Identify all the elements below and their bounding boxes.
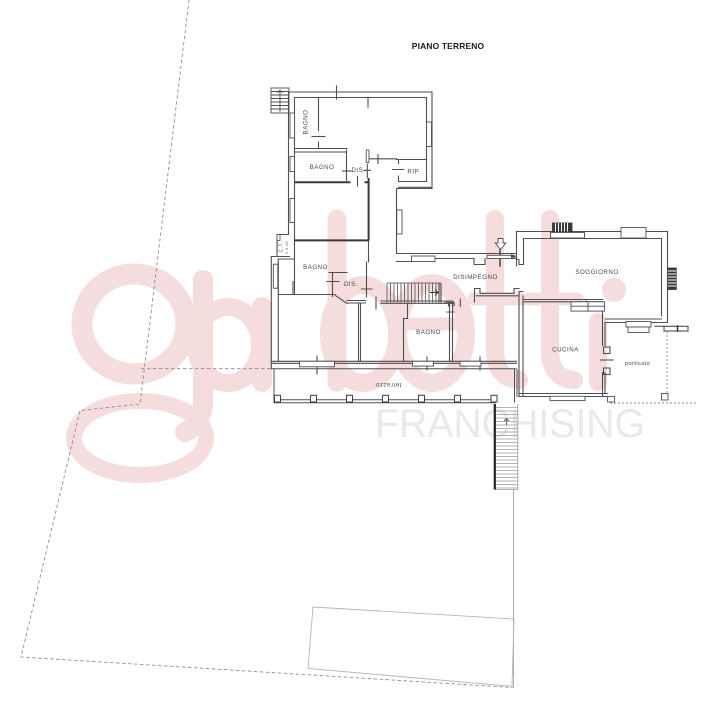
svg-text:DIS.: DIS. — [344, 281, 358, 288]
svg-text:RIP.: RIP. — [407, 169, 420, 176]
svg-text:CUCINA: CUCINA — [552, 347, 579, 354]
svg-text:BAGNO: BAGNO — [303, 264, 328, 271]
svg-text:BAGNO: BAGNO — [303, 110, 310, 135]
svg-text:porticato: porticato — [625, 361, 650, 367]
svg-text:h 2.40: h 2.40 — [285, 241, 289, 254]
svg-text:DISIMPEGNO: DISIMPEGNO — [453, 274, 498, 281]
svg-text:SOGGIORNO: SOGGIORNO — [575, 269, 618, 276]
svg-text:BAGNO: BAGNO — [310, 164, 335, 171]
svg-text:PIANO TERRENO: PIANO TERRENO — [412, 41, 485, 51]
svg-text:C.T.: C.T. — [279, 242, 285, 253]
svg-text:DIS.: DIS. — [351, 167, 365, 174]
svg-text:BAGNO: BAGNO — [416, 329, 441, 336]
svg-text:terrazzo: terrazzo — [376, 381, 402, 387]
